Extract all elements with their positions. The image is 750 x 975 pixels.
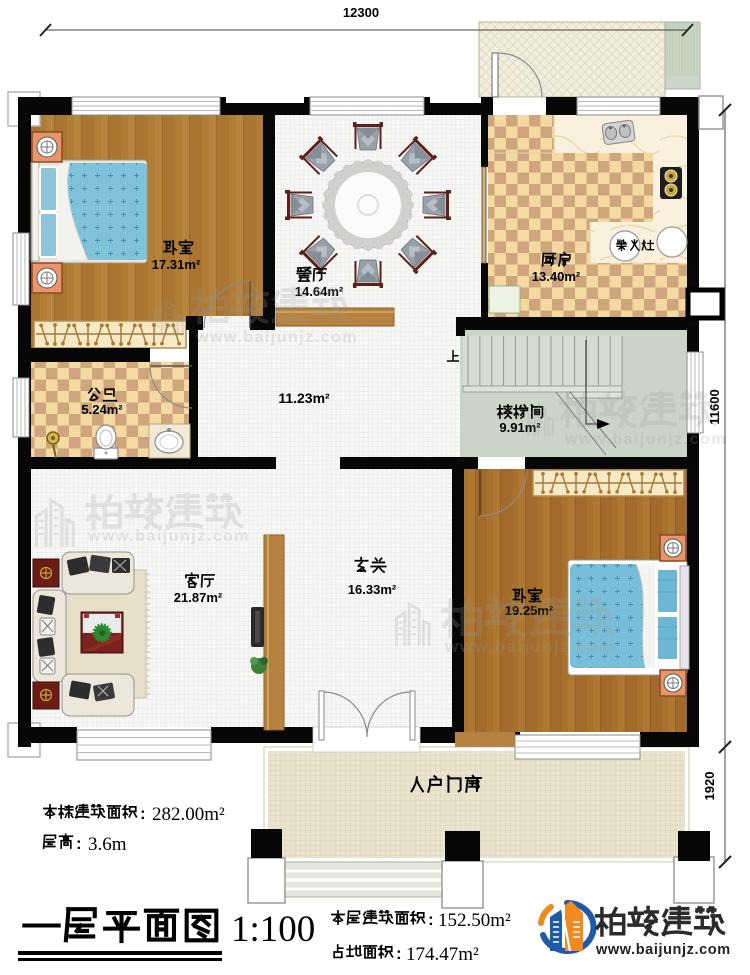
svg-text:www.baijunjz.com: www.baijunjz.com <box>87 528 250 545</box>
svg-text:12300: 12300 <box>343 5 379 20</box>
svg-text:13.40m²: 13.40m² <box>532 269 581 284</box>
svg-text:152.50m²: 152.50m² <box>438 910 511 931</box>
svg-text:174.47m²: 174.47m² <box>406 944 479 965</box>
svg-text:5.24m²: 5.24m² <box>81 402 123 417</box>
svg-text:www.baijunjz.com: www.baijunjz.com <box>564 431 727 448</box>
svg-text::: : <box>76 834 82 853</box>
svg-text:www.baijunjz.com: www.baijunjz.com <box>444 637 616 656</box>
svg-text::: : <box>396 944 402 963</box>
svg-text:1:100: 1:100 <box>231 909 315 950</box>
svg-text:1920: 1920 <box>702 772 717 801</box>
svg-text:www.baijunjz.com: www.baijunjz.com <box>195 329 358 346</box>
svg-text:21.87m²: 21.87m² <box>174 590 223 605</box>
svg-text:17.31m²: 17.31m² <box>152 257 201 272</box>
svg-text:11.23m²: 11.23m² <box>278 390 330 406</box>
svg-text:11600: 11600 <box>707 389 722 424</box>
svg-text::: : <box>428 910 434 929</box>
svg-text::: : <box>140 804 146 823</box>
svg-text:16.33m²: 16.33m² <box>348 582 397 597</box>
svg-text:www.baijunjz.com: www.baijunjz.com <box>595 942 731 958</box>
svg-text:3.6m: 3.6m <box>88 834 127 855</box>
svg-text:282.00m²: 282.00m² <box>152 804 225 825</box>
